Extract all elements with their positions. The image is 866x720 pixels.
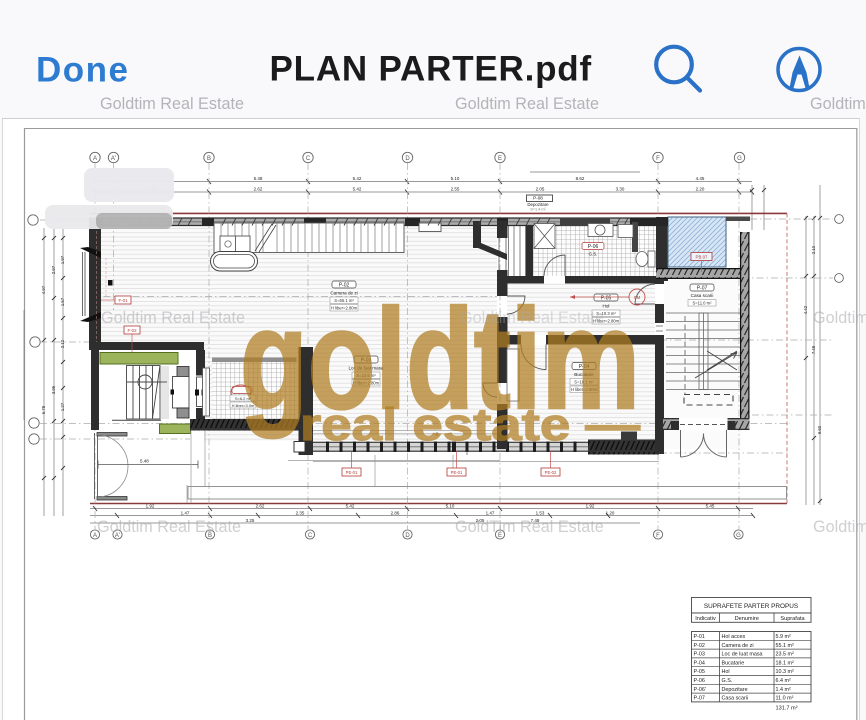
svg-text:PB.07: PB.07 bbox=[696, 255, 709, 260]
svg-text:Camera de zi: Camera de zi bbox=[722, 643, 754, 649]
svg-text:Casa scarii: Casa scarii bbox=[691, 293, 714, 298]
svg-text:P-06: P-06 bbox=[694, 678, 705, 684]
svg-text:1.53: 1.53 bbox=[536, 511, 545, 516]
svg-text:Done: Done bbox=[36, 51, 130, 90]
svg-text:1.27: 1.27 bbox=[60, 402, 65, 411]
svg-text:F: F bbox=[656, 533, 660, 539]
svg-text:11.0 m²: 11.0 m² bbox=[776, 696, 794, 702]
svg-text:D: D bbox=[405, 533, 410, 539]
svg-text:F-02: F-02 bbox=[127, 328, 137, 333]
svg-text:1.20: 1.20 bbox=[606, 511, 615, 516]
svg-text:1.47: 1.47 bbox=[181, 511, 190, 516]
svg-text:1.97: 1.97 bbox=[60, 255, 65, 264]
svg-text:131.7 m²: 131.7 m² bbox=[776, 706, 798, 712]
svg-text:4.45: 4.45 bbox=[696, 176, 705, 181]
svg-text:real estate —: real estate — bbox=[300, 399, 640, 450]
svg-text:9.60: 9.60 bbox=[817, 425, 822, 434]
svg-text:1.4 m²: 1.4 m² bbox=[776, 687, 791, 693]
svg-text:Loc de luat masa: Loc de luat masa bbox=[722, 652, 763, 658]
svg-text:Depozitare: Depozitare bbox=[722, 687, 748, 693]
svg-text:5.10: 5.10 bbox=[446, 504, 455, 509]
svg-text:1.57: 1.57 bbox=[60, 297, 65, 306]
svg-text:Goldtim Real Estate: Goldtim Real Estate bbox=[460, 309, 604, 327]
svg-text:2.55: 2.55 bbox=[451, 187, 460, 192]
svg-text:2.12: 2.12 bbox=[60, 339, 65, 348]
svg-text:1.92: 1.92 bbox=[586, 504, 595, 509]
svg-text:10.3 m²: 10.3 m² bbox=[776, 669, 794, 675]
svg-text:P-02: P-02 bbox=[694, 643, 705, 649]
svg-text:PE-01: PE-01 bbox=[346, 470, 358, 475]
svg-text:P-06: P-06 bbox=[588, 244, 599, 250]
svg-text:P-03: P-03 bbox=[694, 652, 705, 658]
svg-text:6.78: 6.78 bbox=[41, 405, 46, 414]
svg-text:55.1 m²: 55.1 m² bbox=[776, 643, 794, 649]
svg-text:Goldtim Real Estate: Goldtim Real Estate bbox=[455, 95, 599, 113]
svg-text:PLAN PARTER.pdf: PLAN PARTER.pdf bbox=[270, 50, 592, 89]
svg-text:Indicativ: Indicativ bbox=[695, 616, 716, 622]
svg-text:3.95: 3.95 bbox=[51, 385, 56, 394]
svg-text:5.48: 5.48 bbox=[140, 459, 149, 464]
svg-text:2.05: 2.05 bbox=[536, 187, 545, 192]
svg-text:2.35: 2.35 bbox=[296, 511, 305, 516]
svg-text:G.S.: G.S. bbox=[589, 252, 598, 257]
svg-text:1.47: 1.47 bbox=[486, 511, 495, 516]
svg-text:2.62: 2.62 bbox=[254, 187, 263, 192]
svg-text:P-06': P-06' bbox=[694, 687, 706, 693]
svg-text:Denumire: Denumire bbox=[735, 616, 759, 622]
svg-text:Casa scarii: Casa scarii bbox=[722, 696, 749, 702]
svg-text:B: B bbox=[207, 156, 211, 162]
svg-text:G: G bbox=[736, 533, 741, 539]
svg-text:C: C bbox=[306, 156, 311, 162]
svg-text:C: C bbox=[308, 533, 313, 539]
svg-text:P-07: P-07 bbox=[694, 696, 705, 702]
svg-text:A': A' bbox=[111, 156, 116, 162]
svg-text:G.S.: G.S. bbox=[722, 678, 733, 684]
svg-text:3.30: 3.30 bbox=[616, 187, 625, 192]
svg-text:2.97: 2.97 bbox=[51, 265, 56, 274]
svg-text:SUPRAFETE PARTER PROPUS: SUPRAFETE PARTER PROPUS bbox=[704, 603, 798, 610]
svg-text:D: D bbox=[405, 156, 410, 162]
svg-text:5.48: 5.48 bbox=[254, 176, 263, 181]
svg-text:GoldTim Real Estate: GoldTim Real Estate bbox=[455, 518, 604, 536]
svg-text:Goldtim Real Estate: Goldtim Real Estate bbox=[100, 95, 244, 113]
svg-text:Goldtim Real Estate: Goldtim Real Estate bbox=[97, 518, 241, 536]
svg-text:18.1 m²: 18.1 m² bbox=[776, 660, 794, 666]
svg-text:E: E bbox=[498, 156, 502, 162]
svg-text:4.42: 4.42 bbox=[803, 305, 808, 314]
svg-text:5.42: 5.42 bbox=[353, 187, 362, 192]
svg-text:A: A bbox=[93, 156, 97, 162]
svg-text:7.48: 7.48 bbox=[811, 345, 816, 354]
svg-text:Depozitare: Depozitare bbox=[527, 202, 549, 207]
svg-text:2.20: 2.20 bbox=[696, 187, 705, 192]
svg-text:G: G bbox=[737, 156, 742, 162]
svg-text:4.97: 4.97 bbox=[41, 285, 46, 294]
svg-text:6.4 m²: 6.4 m² bbox=[776, 678, 791, 684]
svg-text:2.62: 2.62 bbox=[256, 504, 265, 509]
svg-text:PE-01: PE-01 bbox=[451, 470, 463, 475]
svg-text:F-01: F-01 bbox=[118, 298, 128, 303]
svg-text:5.10: 5.10 bbox=[451, 176, 460, 181]
svg-text:S=11.0 m²: S=11.0 m² bbox=[692, 301, 712, 306]
svg-text:Hol: Hol bbox=[722, 669, 730, 675]
svg-text:Goldtim Real Estate: Goldtim Real Estate bbox=[813, 309, 866, 327]
svg-text:Suprafata: Suprafata bbox=[780, 616, 805, 622]
svg-text:8.62: 8.62 bbox=[576, 176, 585, 181]
svg-text:3.25: 3.25 bbox=[246, 518, 255, 523]
svg-text:P-04: P-04 bbox=[694, 660, 705, 666]
svg-text:Goldtim Real Estate: Goldtim Real Estate bbox=[101, 309, 245, 327]
svg-text:2.10: 2.10 bbox=[811, 245, 816, 254]
svg-text:S=1.4 m²: S=1.4 m² bbox=[530, 208, 546, 212]
svg-text:Goldtim Real Estate: Goldtim Real Estate bbox=[813, 518, 866, 536]
svg-text:Goldtim Real Estate: Goldtim Real Estate bbox=[810, 95, 866, 113]
svg-text:1.92: 1.92 bbox=[146, 504, 155, 509]
svg-text:23.5 m²: 23.5 m² bbox=[776, 652, 794, 658]
svg-text:P-08: P-08 bbox=[533, 196, 543, 201]
svg-text:P-05: P-05 bbox=[694, 669, 705, 675]
svg-text:P-01: P-01 bbox=[694, 634, 705, 640]
svg-text:PE-02: PE-02 bbox=[545, 470, 557, 475]
svg-text:5.9 m²: 5.9 m² bbox=[776, 634, 791, 640]
svg-text:Bucatarie: Bucatarie bbox=[722, 660, 745, 666]
svg-text:P-07: P-07 bbox=[697, 285, 708, 291]
svg-text:5.42: 5.42 bbox=[346, 504, 355, 509]
svg-text:5.42: 5.42 bbox=[353, 176, 362, 181]
svg-text:Hol acces: Hol acces bbox=[722, 634, 746, 640]
svg-text:5.45: 5.45 bbox=[706, 504, 715, 509]
svg-text:2.86: 2.86 bbox=[391, 511, 400, 516]
svg-text:F: F bbox=[656, 156, 660, 162]
